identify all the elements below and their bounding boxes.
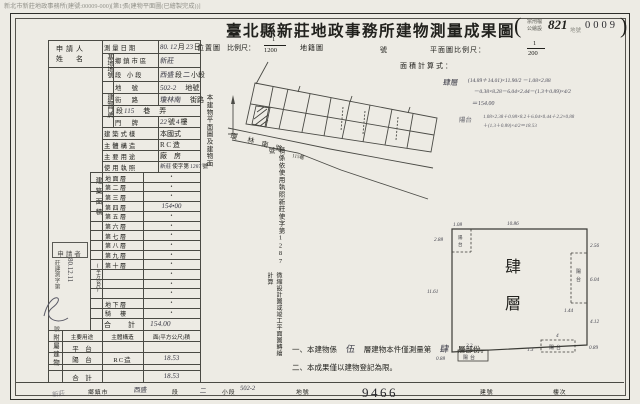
table-row-border	[90, 279, 200, 280]
field-label: 測量日期	[104, 43, 156, 52]
handwritten-value: 115	[124, 107, 135, 115]
handwritten-value: 新莊	[159, 56, 174, 66]
floor-row-value: •	[143, 300, 200, 306]
field-value: 502-2地號	[160, 83, 198, 93]
floor-row-value: •	[143, 223, 200, 229]
handwritten-value: 502-2	[160, 84, 177, 92]
strip-label: 鄉鎮市	[88, 387, 108, 396]
printed-unit-label: 段	[116, 107, 123, 115]
printed-unit-label: 月	[178, 43, 185, 51]
floor-row-label: 第二層	[105, 183, 128, 192]
table-row-border	[48, 370, 200, 371]
floor-row-label: 第四層	[105, 203, 128, 212]
field-value: 本國式	[160, 129, 198, 139]
handwritten-value: 23	[185, 43, 193, 51]
field-value: 22號4樓	[160, 117, 198, 127]
table-row-border	[48, 341, 200, 342]
handwritten-value: 西盛	[159, 70, 174, 80]
generated-table-content: 測量日期80.12月23日鄉鎮市區新莊段 小段西盛段二小段地 號502-2地號街…	[0, 0, 640, 404]
field-value: 新莊	[160, 56, 198, 66]
strip-label: 段	[172, 387, 179, 396]
annex-use: 陽 台	[62, 354, 102, 364]
field-label: 地 號	[115, 83, 156, 92]
field-value: 80.12月23日	[160, 42, 198, 52]
floor-row-value: •	[143, 290, 200, 296]
handwritten-value: 4	[176, 118, 180, 126]
handwritten-value: 22	[160, 118, 168, 126]
strip-label: 小段	[222, 387, 236, 396]
table-row-border	[90, 288, 200, 289]
handwritten-value: 新莊	[160, 162, 172, 170]
printed-unit-label: 使字第	[172, 164, 189, 170]
handwritten-value: 80.	[160, 43, 170, 51]
printed-unit-label: 本國式	[160, 130, 181, 138]
floor-row-value: •	[143, 310, 200, 316]
printed-unit-label: 弄	[159, 107, 166, 115]
group-label: 建物門牌	[103, 94, 114, 126]
floor-row-value: •	[143, 242, 200, 248]
printed-unit-label: 日	[194, 43, 201, 51]
floor-row-value: •	[143, 193, 200, 199]
table-row-border	[48, 364, 200, 365]
cell-divider	[158, 40, 159, 53]
floor-row-value: 154•00	[143, 202, 201, 210]
handwritten-value: 1287	[190, 164, 202, 170]
floor-row-label: 第九層	[105, 251, 128, 260]
field-label: 使用執照	[104, 163, 156, 172]
field-label: 主體構造	[104, 141, 156, 150]
floor-row-label: 第七層	[105, 232, 128, 241]
printed-unit-label: 巷	[143, 107, 150, 115]
printed-unit-label: 號	[168, 118, 175, 126]
printed-unit-label: 號	[202, 164, 208, 170]
scanned-survey-document: 新北市新莊地政事務所(建號:00009-000)[第1張(建物平面圖(已繪製完成…	[0, 0, 640, 404]
handwritten-value: 12	[169, 43, 177, 51]
annex-header: 主體構造	[102, 333, 143, 341]
printed-unit-label: 街路	[190, 96, 204, 104]
strip-value: 西盛	[133, 384, 147, 394]
cell-divider	[158, 150, 159, 161]
field-label: 門 牌	[115, 118, 156, 127]
field-value: 新莊使字第1287號	[160, 162, 198, 170]
handwritten-value: 瓊林南	[159, 95, 181, 105]
annex-area: 18.53	[143, 354, 201, 362]
group-label: 基地地號	[103, 54, 114, 92]
cell-divider	[158, 139, 159, 150]
field-value: R C 造	[160, 140, 198, 150]
floor-row-value: •	[143, 184, 200, 190]
annex-area: 18.53	[143, 372, 201, 380]
floor-row-label: 第五層	[105, 212, 128, 221]
annex-structure: RC造	[102, 354, 143, 364]
field-value: 瓊林南街路	[160, 95, 198, 105]
field-value: 廠 房	[160, 151, 198, 161]
strip-label: 樓次	[553, 387, 567, 396]
field-label: 主要用途	[104, 152, 156, 161]
printed-unit-label: 廠 房	[160, 152, 181, 160]
printed-unit-label: 小段	[191, 71, 205, 79]
floor-row-value: •	[143, 261, 200, 267]
printed-unit-label: 樓	[181, 118, 188, 126]
floor-row-label: 地下層	[105, 300, 128, 309]
printed-unit-label: R C 造	[160, 141, 180, 149]
floor-row-label: 騎 樓	[105, 309, 128, 318]
floor-row-label: 第六層	[105, 222, 128, 231]
floor-row-value: •	[143, 174, 200, 180]
floor-row-label: 第八層	[105, 241, 128, 250]
field-label: 建築式樣	[104, 129, 156, 138]
floor-row-value: •	[143, 271, 200, 277]
annex-header: 主要用途	[62, 333, 102, 341]
strip-label: 建號	[480, 387, 494, 396]
strip-label: 地號	[296, 387, 310, 396]
floors-total-label: 合 計	[104, 320, 140, 330]
field-value: 段115巷弄	[116, 106, 198, 116]
strip-value: 二	[199, 385, 207, 395]
floor-row-label: 第十層	[105, 261, 128, 270]
cell-divider	[158, 127, 159, 139]
handwritten-value: 二	[182, 70, 190, 80]
floor-row-value: •	[143, 281, 200, 287]
field-value: 西盛段二小段	[160, 70, 198, 80]
printed-unit-label: 地號	[185, 84, 199, 92]
strip-value: 502-2	[240, 385, 256, 392]
floor-row-label: 地面層	[105, 174, 128, 183]
annex-header: 面(平方公尺)積	[143, 333, 200, 341]
floor-row-label: 第三層	[105, 193, 128, 202]
strip-value: 新莊	[51, 387, 65, 399]
annex-use: 合 計	[62, 372, 102, 382]
field-label: 段 小段	[115, 70, 156, 79]
floors-total-value: 154.00	[149, 319, 171, 328]
floor-row-value: •	[143, 252, 200, 258]
floor-row-value: •	[143, 232, 200, 238]
field-label: 街 路	[115, 95, 156, 104]
floor-row-value: •	[143, 213, 200, 219]
field-label: 鄉鎮市區	[115, 56, 156, 65]
annex-use: 平 台	[62, 343, 102, 353]
printed-unit-label: 段	[175, 71, 182, 79]
